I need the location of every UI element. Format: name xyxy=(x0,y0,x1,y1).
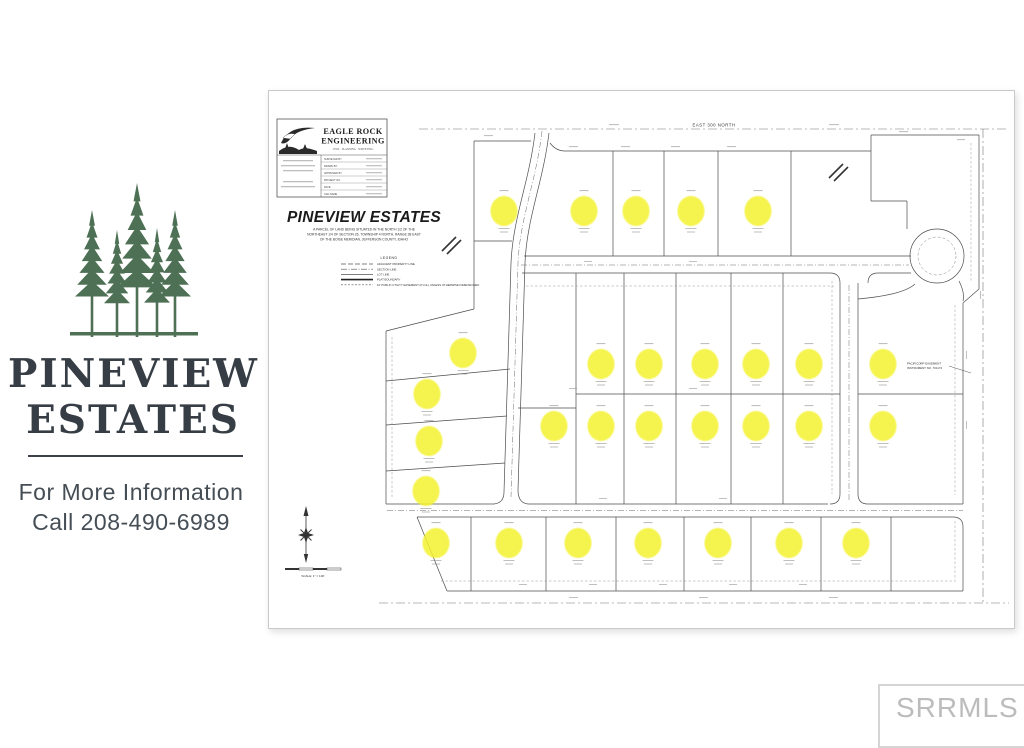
description-line: NORTHEAST 1/4 OF SECTION 26, TOWNSHIP 4 … xyxy=(307,233,421,237)
description-line: OF THE BOISE MERIDIAN, JEFFERSON COUNTY,… xyxy=(320,238,409,242)
legend-title: LEGEND xyxy=(381,256,398,260)
legend-item-label: 10' PUBLIC UTILITY EASEMENT (P.U.E.) UNL… xyxy=(377,283,479,287)
lot-marker xyxy=(692,349,719,379)
legend-item-label: SECTION LINE xyxy=(377,267,397,271)
firm-tagline: CIVIL · PLANNING · SURVEYING xyxy=(333,148,374,151)
legend-item-label: LOT LINE xyxy=(377,273,390,277)
street-label-top: EAST 300 NORTH xyxy=(693,123,736,128)
lot-marker xyxy=(496,528,523,558)
lot-marker xyxy=(743,349,770,379)
lot-marker xyxy=(423,528,450,558)
legend-item-label: ADJACENT PROPERTY LINE xyxy=(377,262,415,266)
lot-marker xyxy=(678,196,705,226)
lot-marker xyxy=(623,196,650,226)
mls-watermark-box: SRRMLS xyxy=(878,684,1024,748)
firm-table-label: APPROVED BY xyxy=(324,172,342,175)
lot-marker xyxy=(796,411,823,441)
cul-de-sac-easement xyxy=(918,237,956,275)
lot-marker xyxy=(870,349,897,379)
lot-marker xyxy=(635,528,662,558)
lot-marker xyxy=(843,528,870,558)
brand-title-line1: PINEVIEW xyxy=(8,355,258,394)
description-line: A PARCEL OF LAND BEING SITUATED IN THE N… xyxy=(313,228,416,232)
firm-table-label: DRAWN BY xyxy=(324,165,338,168)
flyer-page: { "page": { "background": "#ffffff" }, "… xyxy=(0,0,1024,728)
mls-watermark-label: SRRMLS xyxy=(880,686,1019,724)
brand-title-line2: ESTATES xyxy=(8,401,258,440)
lot-marker xyxy=(565,528,592,558)
plat-map-sheet: EAGLE ROCK ENGINEERING CIVIL · PLANNING … xyxy=(268,90,1015,629)
firm-table-label: PROJECT NO. xyxy=(324,179,341,182)
brand-divider xyxy=(28,455,243,457)
lot-marker xyxy=(705,528,732,558)
lot-marker xyxy=(416,426,443,456)
pine-trees-icon xyxy=(60,178,210,343)
phone-number: Call 208-490-6989 xyxy=(0,509,262,536)
available-lot-markers xyxy=(413,190,897,565)
lot-marker xyxy=(743,411,770,441)
lot-marker xyxy=(776,528,803,558)
legend-item-label: PLAT BOUNDARY xyxy=(377,278,400,282)
scale-bar: SCALE: 1" = 100' xyxy=(285,568,341,578)
lot-marker xyxy=(571,196,598,226)
scale-label: SCALE: 1" = 100' xyxy=(301,574,325,578)
firm-name-line2: ENGINEERING xyxy=(321,137,385,146)
easement-note-line2: INSTRUMENT NO. 701174 xyxy=(907,366,942,370)
lot-marker xyxy=(745,196,772,226)
lot-marker xyxy=(413,476,440,506)
lot-marker xyxy=(636,411,663,441)
firm-table-label: CAD NAME xyxy=(324,193,338,196)
plat-title: PINEVIEW ESTATES xyxy=(287,209,441,226)
road-centerlines xyxy=(387,131,963,511)
firm-table-label: SURVEYED BY xyxy=(324,158,342,161)
lot-marker xyxy=(588,349,615,379)
road-edges xyxy=(386,133,964,527)
lot-marker xyxy=(588,411,615,441)
lot-marker xyxy=(870,411,897,441)
legend: LEGEND ADJACENT PROPERTY LINESECTION LIN… xyxy=(341,256,479,287)
lot-marker xyxy=(414,379,441,409)
north-arrow-icon xyxy=(298,506,314,563)
info-line: For More Information xyxy=(0,479,262,506)
firm-title-block: EAGLE ROCK ENGINEERING CIVIL · PLANNING … xyxy=(277,119,387,197)
lot-marker xyxy=(450,338,477,368)
lot-marker xyxy=(491,196,518,226)
legend-items: ADJACENT PROPERTY LINESECTION LINELOT LI… xyxy=(341,262,479,287)
plat-map: EAGLE ROCK ENGINEERING CIVIL · PLANNING … xyxy=(269,91,1014,628)
branding-panel: PINEVIEW ESTATES For More Information Ca… xyxy=(0,0,262,728)
lot-marker xyxy=(796,349,823,379)
easement-note: PACIFICORP EASEMENT INSTRUMENT NO. 70117… xyxy=(907,362,971,374)
lot-marker xyxy=(541,411,568,441)
lot-marker xyxy=(636,349,663,379)
easement-leader-line xyxy=(949,366,971,373)
firm-table-label: DATE xyxy=(324,186,331,189)
firm-name-line1: EAGLE ROCK xyxy=(323,127,383,136)
plat-description: A PARCEL OF LAND BEING SITUATED IN THE N… xyxy=(307,228,421,242)
lot-marker xyxy=(692,411,719,441)
